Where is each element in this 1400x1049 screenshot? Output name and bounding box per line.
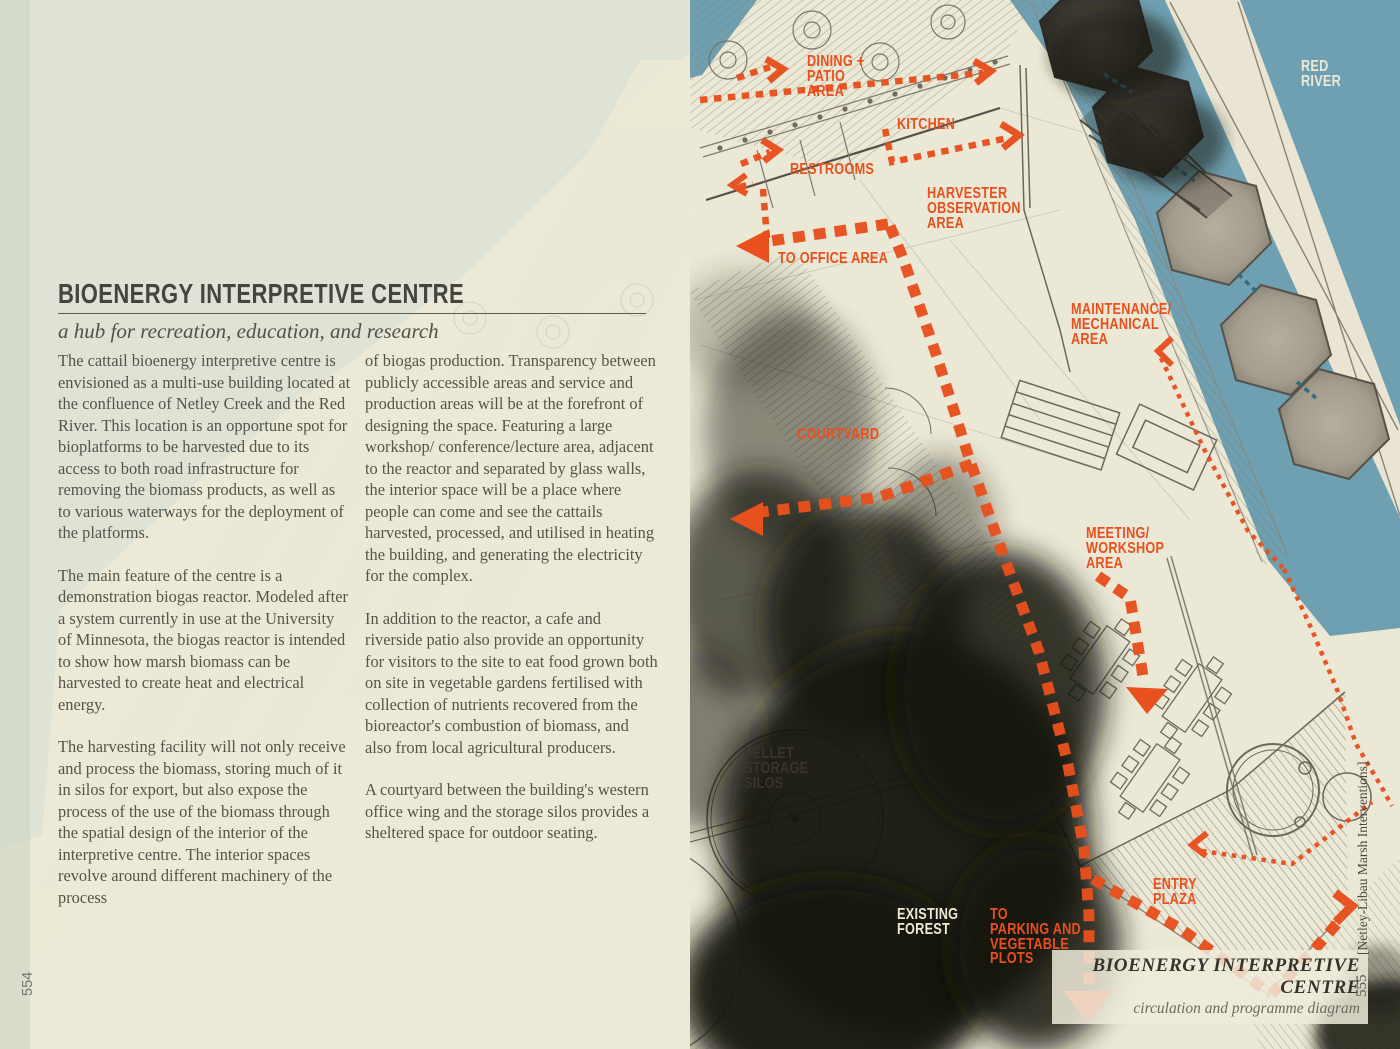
body-column-2: of biogas production. Transparency betwe… xyxy=(365,350,659,865)
label-existing-forest: EXISTING FOREST xyxy=(897,908,958,938)
body-paragraph: The main feature of the centre is a demo… xyxy=(58,565,352,716)
label-meeting-workshop-area: MEETING/ WORKSHOP AREA xyxy=(1086,527,1164,571)
caption-title: BIOENERGY INTERPRETIVE CENTRE xyxy=(1060,955,1360,999)
page-subtitle: a hub for recreation, education, and res… xyxy=(58,319,646,344)
caption-subtitle: circulation and programme diagram xyxy=(1060,1000,1360,1018)
title-rule xyxy=(58,313,646,314)
label-entry-plaza: ENTRY PLAZA xyxy=(1153,878,1197,908)
page-number-left: 554 xyxy=(20,972,36,996)
label-to-office-area: TO OFFICE AREA xyxy=(778,252,888,267)
page-number-right: 555 xyxy=(1354,975,1371,998)
label-harvester-observation-area: HARVESTER OBSERVATION AREA xyxy=(927,187,1021,231)
body-paragraph: The harvesting facility will not only re… xyxy=(58,736,352,908)
label-red-river: RED RIVER xyxy=(1301,60,1341,90)
diagram-caption: BIOENERGY INTERPRETIVE CENTRE circulatio… xyxy=(1052,950,1368,1024)
label-restrooms: RESTROOMS xyxy=(790,163,874,178)
label-kitchen: KITCHEN xyxy=(897,118,955,133)
label-dining-patio-area: DINING + PATIO AREA xyxy=(807,55,864,99)
body-paragraph: A courtyard between the building's weste… xyxy=(365,779,659,844)
body-column-1: The cattail bioenergy interpretive centr… xyxy=(58,350,352,929)
body-paragraph: of biogas production. Transparency betwe… xyxy=(365,350,659,587)
body-paragraph: The cattail bioenergy interpretive centr… xyxy=(58,350,352,544)
book-spread: BIOENERGY INTERPRETIVE CENTRE a hub for … xyxy=(0,0,1400,1049)
page-title: BIOENERGY INTERPRETIVE CENTRE xyxy=(58,278,528,310)
title-block: BIOENERGY INTERPRETIVE CENTRE a hub for … xyxy=(58,278,646,344)
label-courtyard: COURTYARD xyxy=(797,428,879,443)
body-paragraph: In addition to the reactor, a cafe and r… xyxy=(365,608,659,759)
sidebar-series-text: [Netley-Libau Marsh Interventions] xyxy=(1355,762,1371,955)
label-pellet-storage-silos: PELLET STORAGE SILOS xyxy=(744,747,808,791)
label-maintenance-mechanical-area: MAINTENANCE/ MECHANICAL AREA xyxy=(1071,303,1171,347)
